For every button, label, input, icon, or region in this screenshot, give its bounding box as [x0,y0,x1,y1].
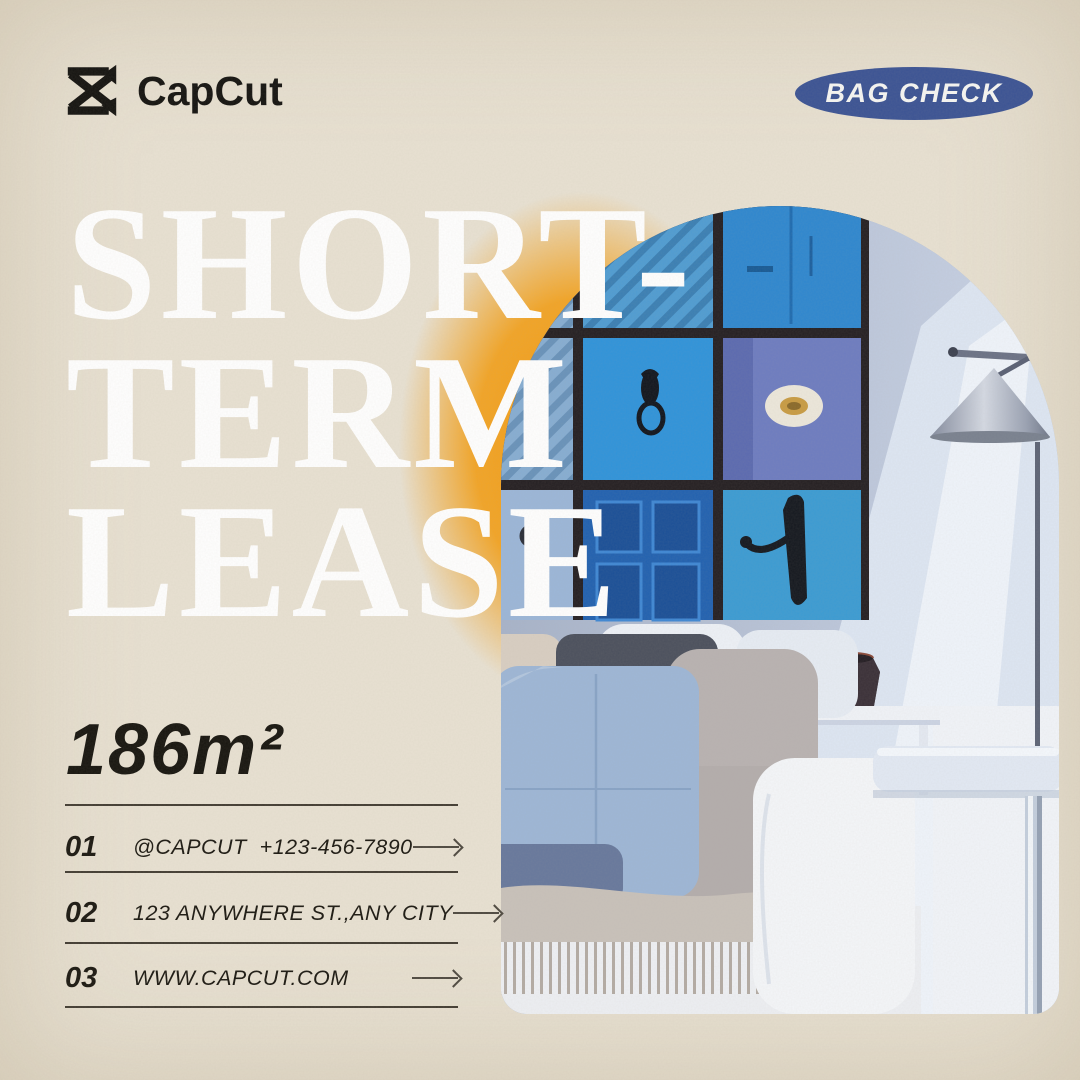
long-arrow-right-icon[interactable] [413,846,459,848]
capcut-logo[interactable]: CapCut [62,64,283,118]
door-plaque [765,385,823,427]
long-arrow-right-icon[interactable] [453,912,499,914]
capcut-logo-icon [62,64,122,118]
area-size: 186m² [66,709,284,791]
row-label: WWW.CAPCUT.COM [133,966,412,991]
row-label: 123 ANYWHERE ST.,ANY CITY [133,901,453,926]
headline-line-3: LEASE [66,488,694,637]
divider [65,871,458,873]
row-label: @CAPCUT +123-456-7890 [133,835,413,860]
sofa [501,624,921,1014]
contact-row-2[interactable]: 02 123 ANYWHERE ST.,ANY CITY [65,893,458,933]
row-number: 03 [65,962,133,995]
contact-row-3[interactable]: 03 WWW.CAPCUT.COM [65,958,458,998]
capcut-logo-text: CapCut [137,68,283,115]
divider [65,1006,458,1008]
headline-line-1: SHORT- [66,190,694,339]
long-arrow-right-icon[interactable] [412,977,458,979]
poster-canvas: SHORT- TERM LEASE CapCut BAG CHECK 186m² [0,0,1080,1080]
contact-row-1[interactable]: 01 @CAPCUT +123-456-7890 [65,827,458,867]
bag-check-badge[interactable]: BAG CHECK [795,67,1033,120]
headline: SHORT- TERM LEASE [66,190,694,637]
badge-label: BAG CHECK [825,78,1002,109]
headline-line-2: TERM [66,339,694,488]
row-number: 01 [65,831,133,864]
divider [65,942,458,944]
divider [65,804,458,806]
row-number: 02 [65,897,133,930]
